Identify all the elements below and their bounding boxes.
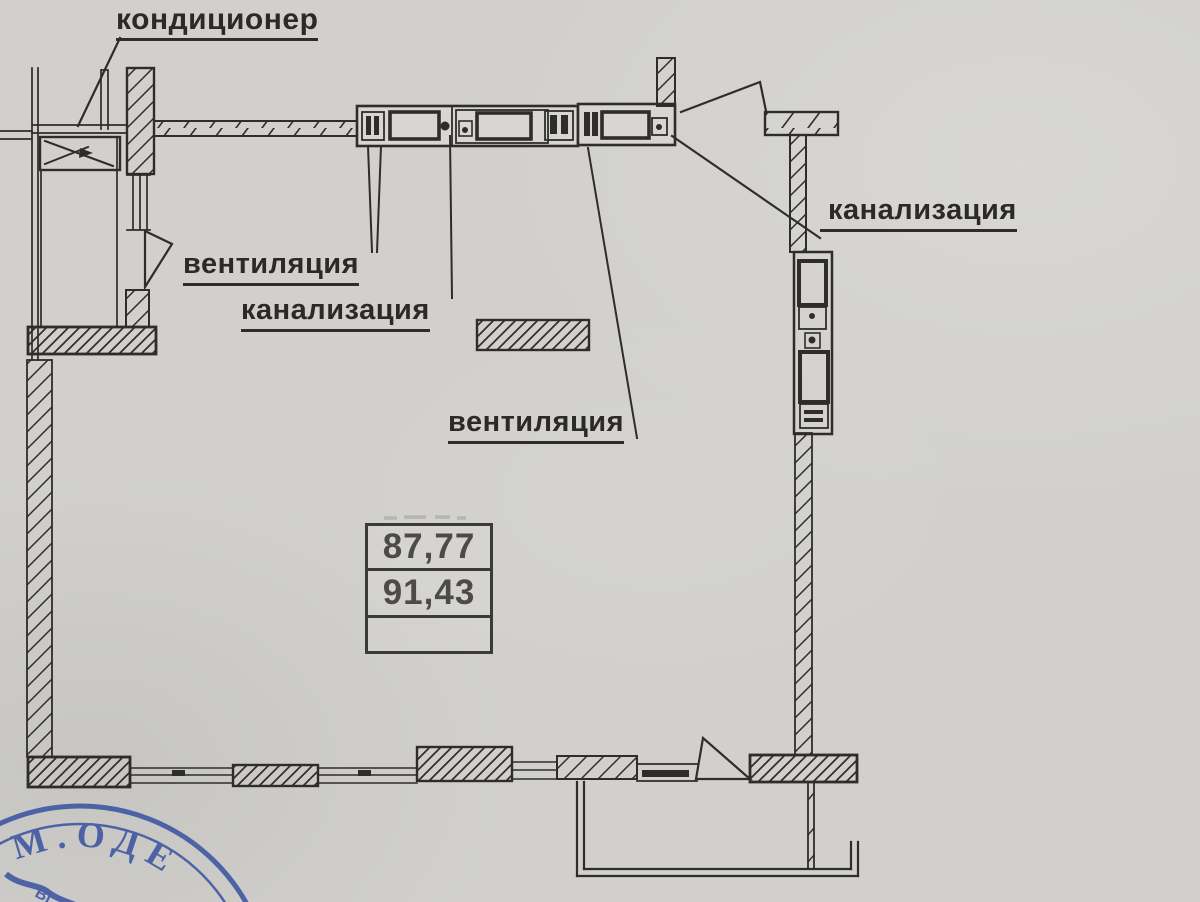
- label-ventilation-left: вентиляция: [183, 249, 359, 286]
- right-wall: [795, 433, 812, 755]
- interior-pier: [477, 320, 589, 350]
- ac-unit: [40, 137, 120, 170]
- faint-smudge: [384, 517, 466, 518]
- bottom-window-2: [318, 768, 417, 783]
- top-wall: [154, 58, 838, 252]
- top-left-pier: [127, 68, 154, 174]
- duct-block-left: [357, 106, 578, 146]
- bottom-pier-1: [233, 765, 318, 786]
- area-value-row: [368, 618, 490, 651]
- bottom-window-1: [130, 768, 233, 783]
- ac-loggia: [0, 68, 172, 360]
- loggia-door-swing: [145, 231, 172, 287]
- top-right-door-swing: [681, 82, 766, 112]
- duct-block-right: [578, 104, 675, 145]
- floor-plan-scan: М.ОДЕ ВІ кондиционер вентиляция канализа…: [0, 0, 1200, 902]
- bottom-pier-3: [557, 756, 637, 779]
- bottom-window-3: [512, 762, 557, 779]
- label-sewerage-left: канализация: [241, 295, 430, 332]
- bottom-window-4: [637, 764, 697, 781]
- area-value-row: 91,43: [368, 571, 490, 618]
- bottom-right-wall: [750, 755, 857, 782]
- bottom-left-corner-pier: [28, 757, 130, 787]
- right-wall-stem: [790, 135, 806, 252]
- top-right-wall-bar: [765, 112, 838, 135]
- bottom-wall: [28, 738, 857, 787]
- floor-plan-drawing: М.ОДЕ ВІ: [0, 0, 1200, 902]
- bottom-door-swing: [696, 738, 750, 779]
- loggia-bottom-wall: [28, 327, 156, 354]
- leader-lines: [78, 38, 820, 438]
- label-sewerage-right: канализация: [820, 195, 1017, 232]
- top-right-stub-wall: [657, 58, 675, 106]
- area-value-row: 87,77: [368, 526, 490, 571]
- stamp: М.ОДЕ ВІ: [0, 806, 271, 902]
- loggia-wall-piece: [126, 290, 149, 327]
- label-conditioner: кондиционер: [116, 3, 318, 41]
- loggia-window: [127, 175, 150, 230]
- right-shaft-assembly: [794, 252, 832, 434]
- label-ventilation-center: вентиляция: [448, 407, 624, 444]
- area-table: 87,77 91,43: [365, 523, 493, 654]
- left-wall: [27, 360, 52, 757]
- bottom-pier-2: [417, 747, 512, 781]
- balcony-outline: [577, 782, 858, 876]
